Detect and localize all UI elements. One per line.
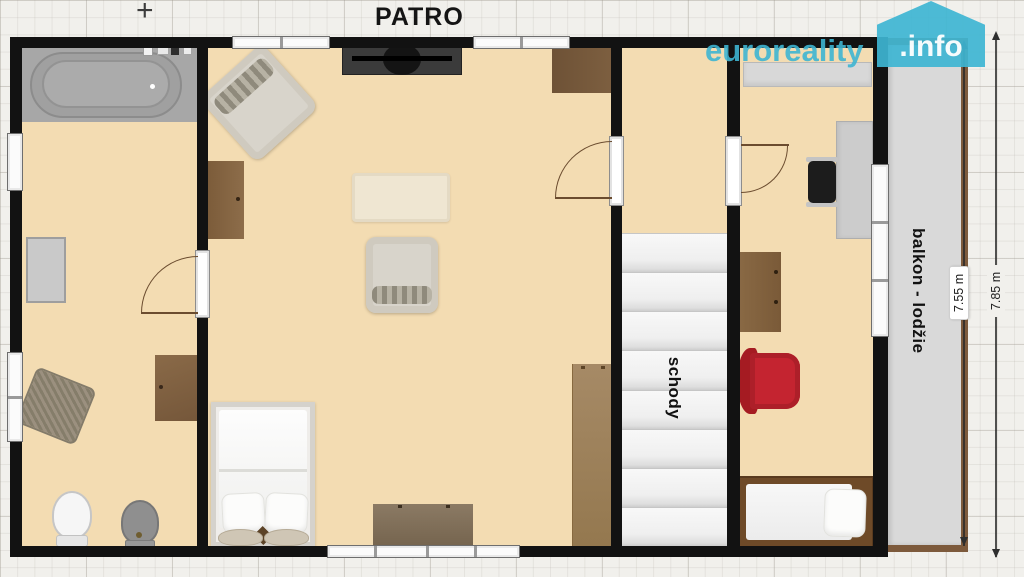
dimension-label-outer: 7.85 m [987, 265, 1005, 317]
wall-desk [208, 161, 244, 239]
radiator [26, 237, 66, 303]
arrow-up-icon [992, 31, 1000, 40]
balcony-railing-bottom [884, 545, 968, 552]
floorplan-canvas: PATRO + balkon - lodžie [0, 0, 1024, 577]
door-leaf [555, 197, 612, 199]
armchair [366, 237, 438, 313]
double-bed [211, 402, 315, 547]
drawer-handle-icon [159, 385, 163, 389]
window [7, 133, 23, 191]
stair-tread [622, 507, 727, 546]
cushion [264, 529, 309, 546]
window [327, 545, 520, 558]
window [7, 352, 23, 442]
stair-tread [622, 468, 727, 507]
tall-cabinet [572, 364, 611, 546]
wardrobe [552, 48, 613, 93]
drawer-handle-icon [236, 197, 240, 201]
pillow [823, 488, 867, 537]
window [473, 36, 570, 49]
stairs-label: schody [664, 328, 684, 448]
dimension-label-inner: 7.55 m [949, 266, 969, 320]
watermark-brand-text: euroreality [705, 33, 864, 69]
single-bed [738, 476, 874, 548]
stair-tread [622, 233, 727, 272]
stair-tread [622, 272, 727, 311]
window [232, 36, 330, 49]
bath-side-table [155, 355, 197, 421]
balcony-door-window [871, 164, 889, 337]
watermark-house-icon: .info [877, 1, 985, 67]
faucet-icon [157, 47, 169, 55]
pillow [264, 492, 309, 534]
tv-screen-icon [352, 56, 452, 61]
faucet-icon [183, 47, 192, 55]
page-title: PATRO [375, 3, 455, 32]
crosshair-icon: + [136, 0, 154, 28]
arrow-down-icon [992, 549, 1000, 558]
office-desk [836, 121, 873, 239]
bidet [119, 500, 161, 550]
wall-stairwell-right [727, 48, 740, 546]
bathtub [30, 52, 182, 118]
watermark-domain-text: .info [899, 30, 962, 67]
toilet [50, 491, 94, 549]
cushion [218, 529, 263, 546]
staircase: schody [622, 233, 727, 546]
balcony-label: balkon - lodžie [908, 228, 928, 348]
wall-left [10, 37, 22, 557]
red-armchair [737, 348, 801, 414]
tub-drain-icon [150, 84, 155, 89]
bookshelf [736, 252, 781, 332]
office-chair [804, 157, 840, 207]
desk [373, 504, 473, 547]
arrow-down-icon [960, 537, 968, 546]
door-leaf [741, 144, 789, 146]
door-leaf [141, 312, 198, 314]
door-jamb [725, 136, 742, 206]
wall-stairwell-left [611, 48, 622, 546]
area-rug [352, 173, 450, 222]
